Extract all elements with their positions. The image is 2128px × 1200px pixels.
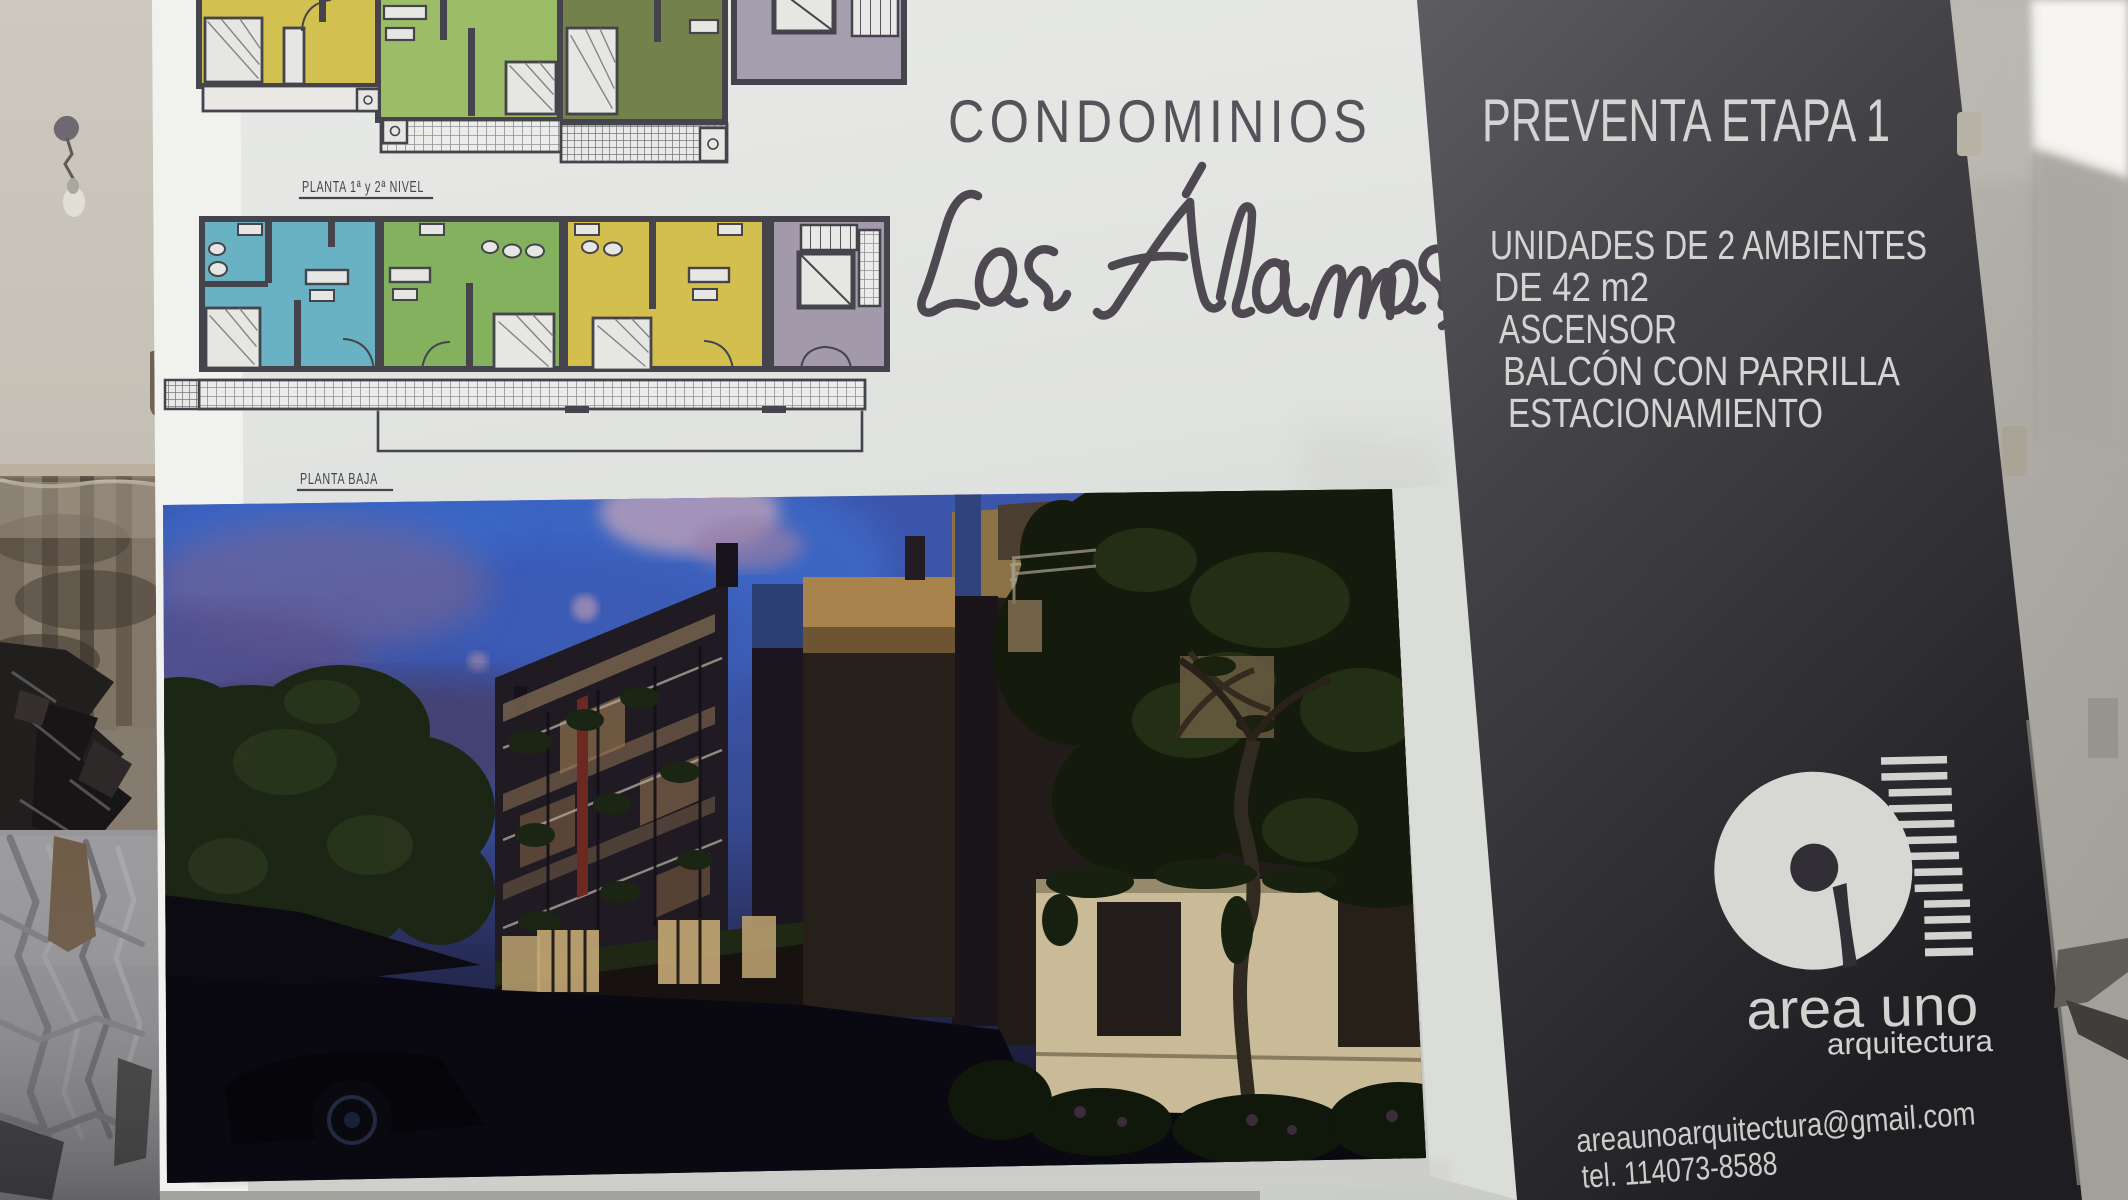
svg-text:UNIDADES DE 2 AMBIENTES: UNIDADES DE 2 AMBIENTES xyxy=(1490,222,1927,268)
svg-text:CONDOMINIOS: CONDOMINIOS xyxy=(948,88,1372,155)
svg-text:arquitectura: arquitectura xyxy=(1827,1025,1994,1061)
svg-text:PREVENTA ETAPA 1: PREVENTA ETAPA 1 xyxy=(1482,87,1890,154)
svg-text:BALCÓN CON PARRILLA: BALCÓN CON PARRILLA xyxy=(1503,348,1901,394)
svg-text:PLANTA 1ª y 2ª NIVEL: PLANTA 1ª y 2ª NIVEL xyxy=(302,179,424,196)
svg-text:ASCENSOR: ASCENSOR xyxy=(1499,306,1677,352)
svg-text:PLANTA BAJA: PLANTA BAJA xyxy=(300,471,378,488)
svg-text:ESTACIONAMIENTO: ESTACIONAMIENTO xyxy=(1508,390,1823,436)
svg-text:DE 42 m2: DE 42 m2 xyxy=(1494,264,1649,310)
